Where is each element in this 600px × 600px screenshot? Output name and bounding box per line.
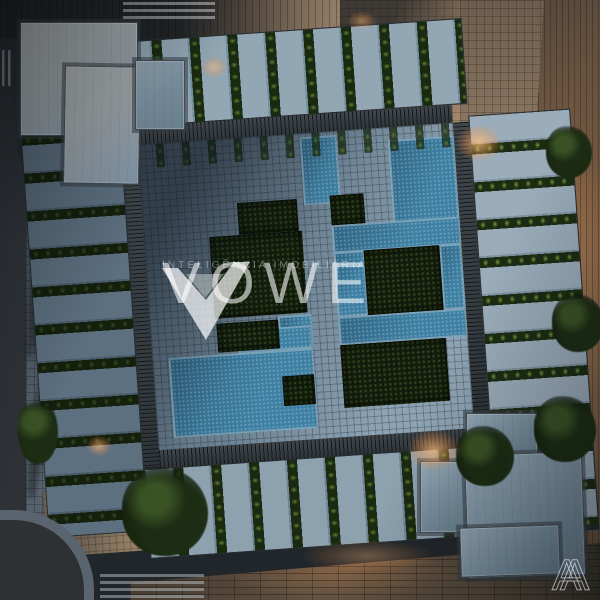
crosswalk-top: [123, 2, 215, 22]
corner-letter-a: A A: [550, 544, 594, 596]
courtyard: [138, 123, 475, 450]
aerial-render: VOWE INTELIGÊNCIA IMOBILIÁRIA A A: [0, 0, 600, 600]
tree: [122, 468, 208, 556]
rooftop: [459, 524, 561, 577]
tree: [552, 294, 600, 352]
rooftop: [135, 60, 185, 130]
corner-letter-a-outline: A: [560, 551, 590, 596]
crosswalk-bottom: [100, 574, 204, 598]
tree: [546, 126, 592, 178]
rooftop: [63, 65, 141, 184]
palm-tree: [18, 398, 58, 464]
tree: [456, 426, 514, 486]
tree: [534, 396, 596, 462]
building-shadow: [138, 123, 475, 450]
